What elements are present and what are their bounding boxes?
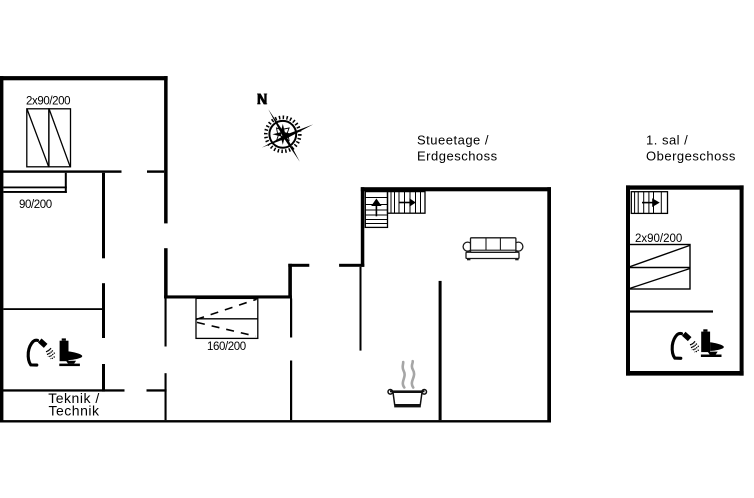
svg-text:160/200: 160/200 <box>207 341 246 353</box>
svg-text:Erdgeschoss: Erdgeschoss <box>417 149 498 164</box>
svg-text:Stueetage /: Stueetage / <box>417 133 489 148</box>
svg-text:Technik: Technik <box>49 403 100 419</box>
svg-text:90/200: 90/200 <box>19 199 52 211</box>
svg-text:1. sal /: 1. sal / <box>646 133 688 148</box>
svg-text:Obergeschoss: Obergeschoss <box>646 149 736 164</box>
svg-text:2x90/200: 2x90/200 <box>26 96 70 108</box>
svg-text:2x90/200: 2x90/200 <box>635 233 682 245</box>
